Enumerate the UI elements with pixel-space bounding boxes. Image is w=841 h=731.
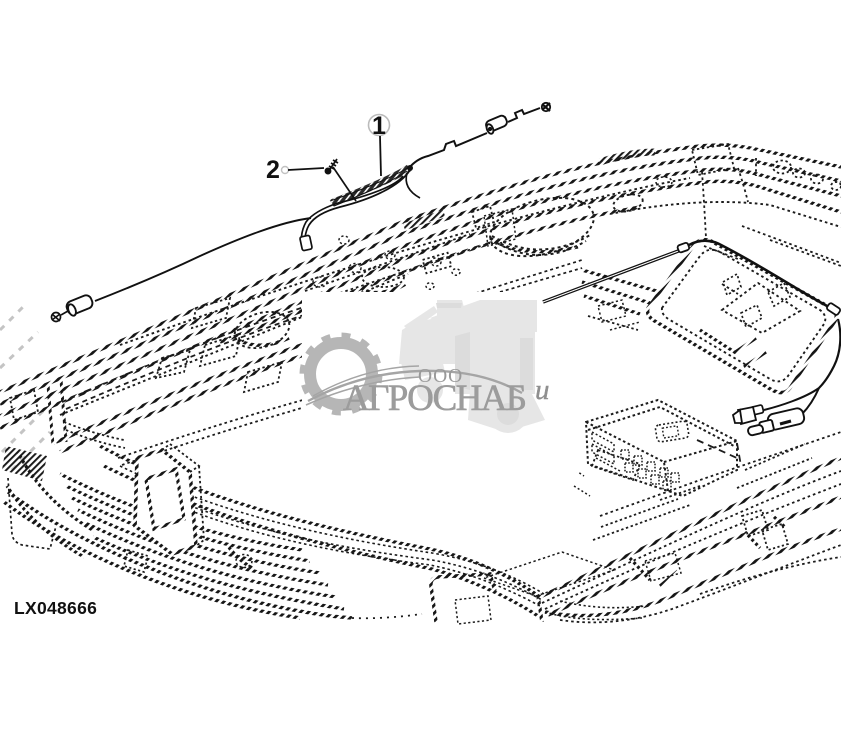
svg-text:2: 2 [266,156,280,184]
svg-text:1: 1 [372,112,386,140]
svg-text:и: и [535,374,550,406]
svg-text:АГРОСНАБ: АГРОСНАБ [343,378,527,419]
svg-text:LX048666: LX048666 [14,598,97,618]
